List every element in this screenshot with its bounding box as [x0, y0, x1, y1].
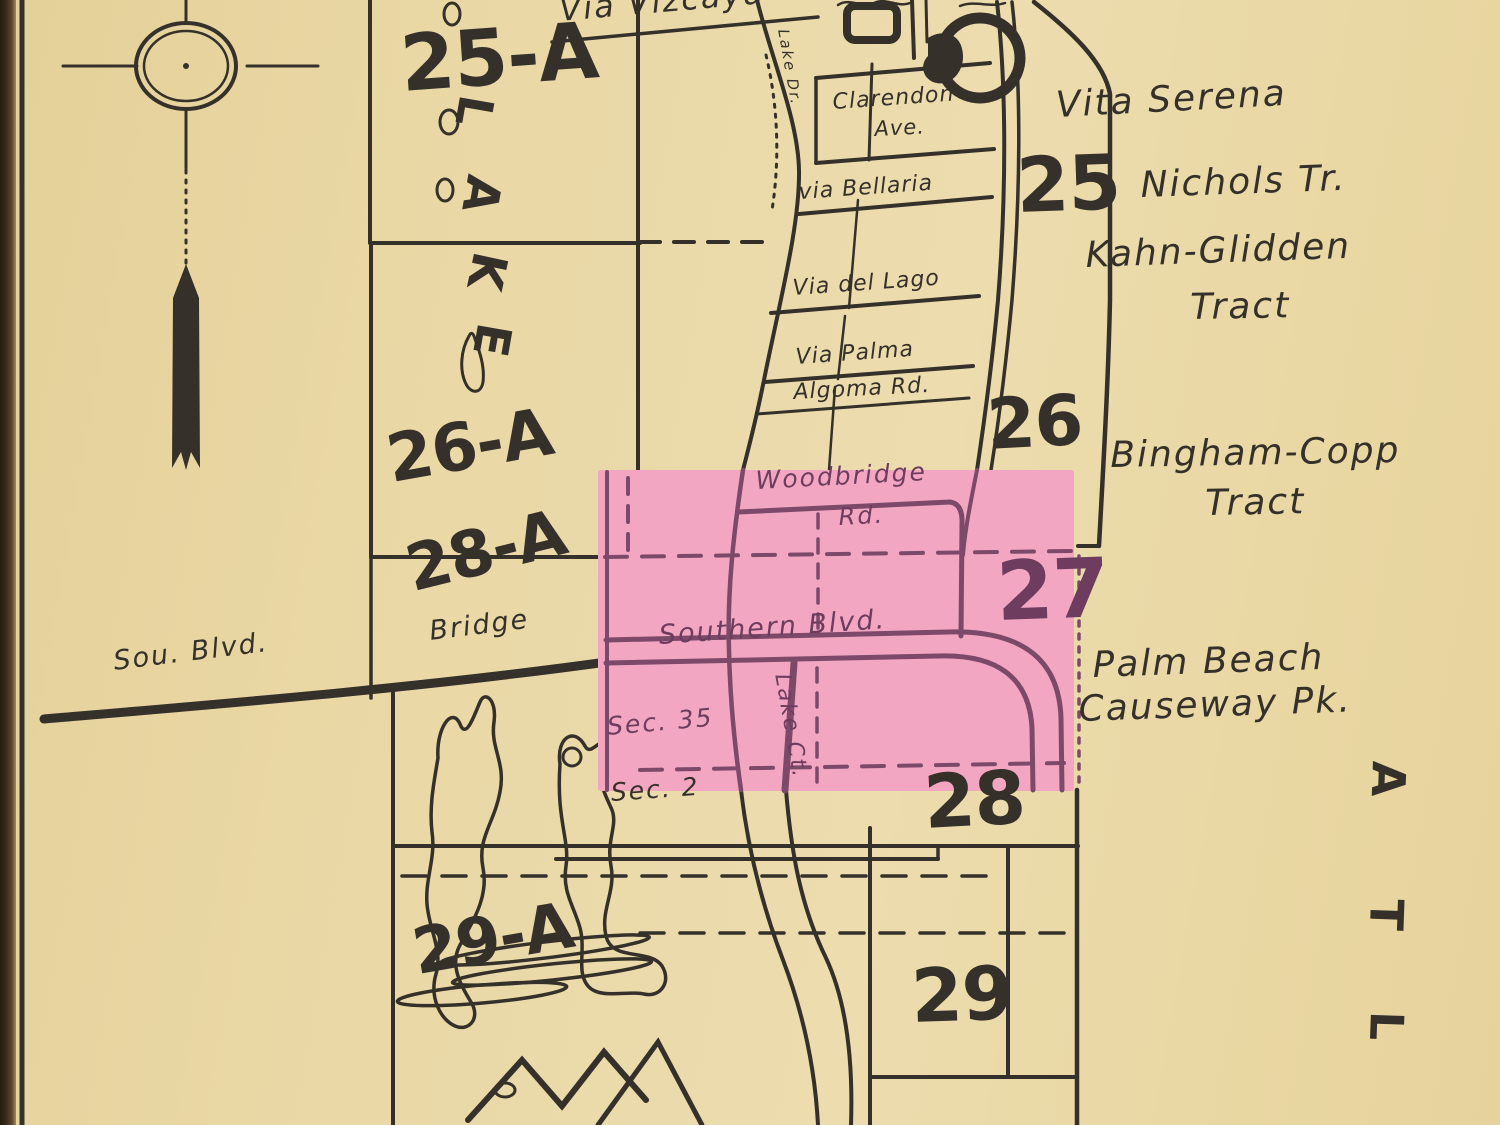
compass-needle	[172, 264, 200, 470]
street-label-clarendon-ave: Ave.	[874, 116, 925, 140]
atlantic-letter-a: A	[1365, 760, 1412, 797]
sheet-number-25: 25	[1015, 144, 1121, 224]
sheet-number-27-highlighted: 27	[995, 548, 1110, 634]
plat-index-map: Via Vizcaya Clarendon Ave. via Bellaria …	[0, 0, 1500, 1125]
sheet-number-29: 29	[910, 956, 1014, 1033]
tract-label-bingham-tract: Tract	[1205, 484, 1306, 522]
lake-letter-a: A	[454, 172, 508, 217]
atlantic-letter-l: L	[1363, 1010, 1410, 1041]
section-label-sec2: Sec. 2	[610, 774, 700, 805]
tract-label-palm-beach: Palm Beach	[1092, 640, 1325, 684]
sheet-number-26: 26	[985, 385, 1084, 460]
tract-label-bingham-copp: Bingham-Copp	[1110, 433, 1401, 474]
street-label-woodbridge-rd: Rd.	[838, 503, 885, 529]
tract-label-causeway: Causeway Pk.	[1078, 682, 1352, 728]
tract-label-kahn-glidden-tract: Tract	[1190, 288, 1291, 326]
compass-rose	[63, 0, 318, 470]
sheet-number-25a: 25-A	[398, 12, 600, 104]
tract-label-kahn-glidden: Kahn-Glidden	[1085, 229, 1352, 274]
sheet-number-28: 28	[922, 761, 1027, 840]
tract-label-nichols: Nichols Tr.	[1140, 161, 1347, 204]
atlantic-letter-t: T	[1363, 898, 1410, 931]
